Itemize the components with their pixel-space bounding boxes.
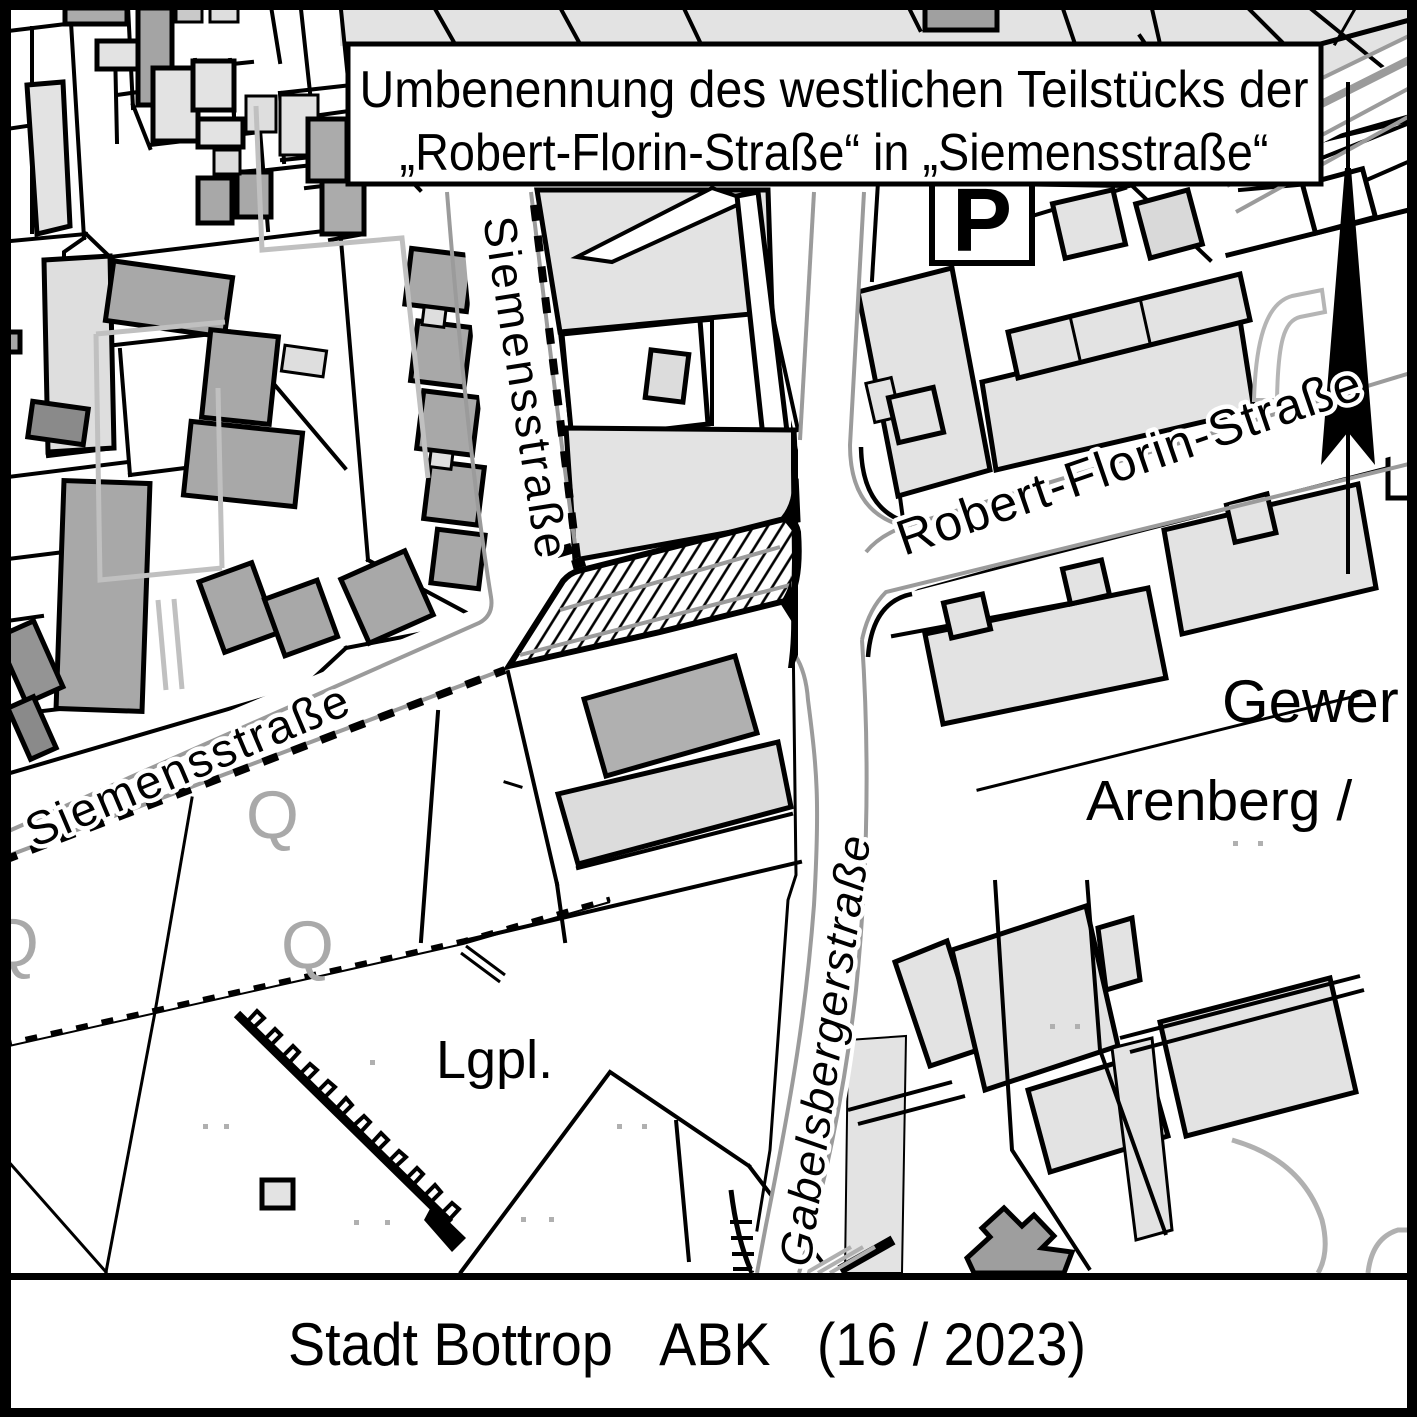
svg-text:Q: Q: [246, 777, 299, 853]
svg-text:Lgpl.: Lgpl.: [436, 1030, 553, 1090]
svg-text:„Robert-Florin-Straße“ in „Sie: „Robert-Florin-Straße“ in „Siemensstraße…: [400, 124, 1269, 182]
svg-text:Gewer: Gewer: [1222, 668, 1399, 735]
svg-text:Arenberg /: Arenberg /: [1086, 769, 1352, 833]
svg-text:Q: Q: [281, 907, 334, 983]
svg-text:Umbenennung des westlichen Tei: Umbenennung des westlichen Teilstücks de…: [360, 61, 1309, 119]
svg-text:Stadt Bottrop ABK (16 / 20: Stadt Bottrop ABK (16 / 2023): [288, 1311, 1086, 1378]
